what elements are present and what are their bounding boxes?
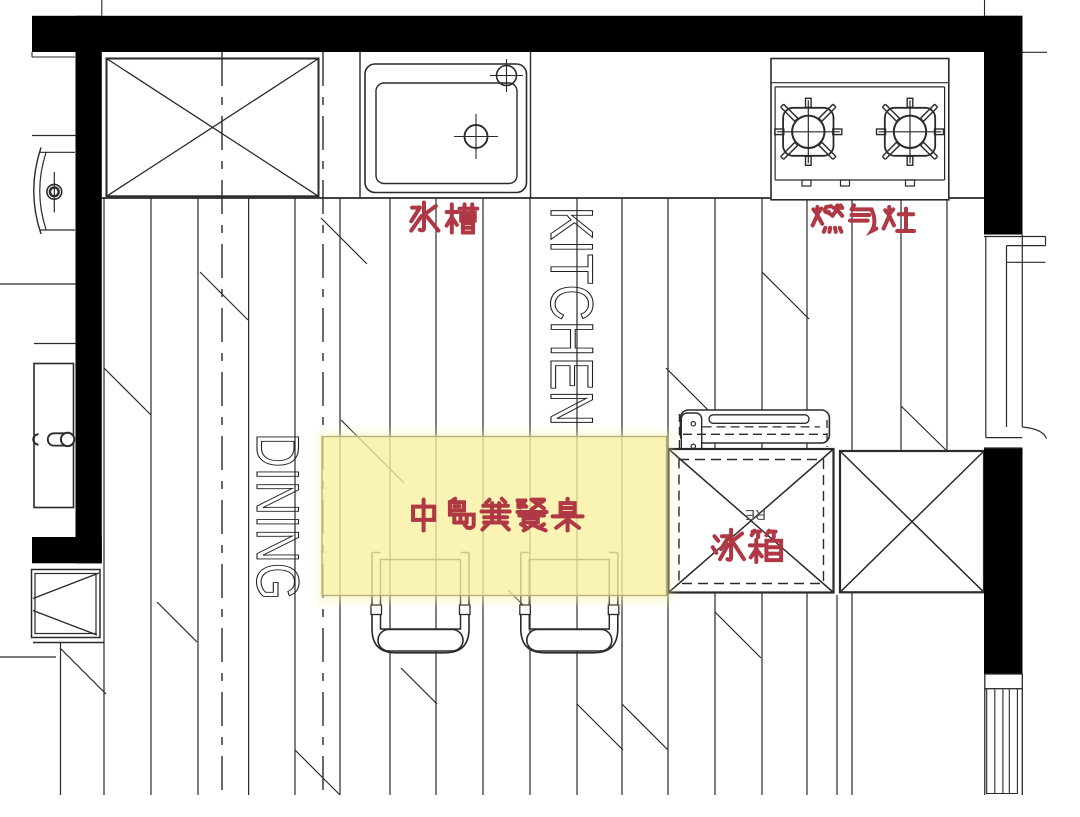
svg-text:DINING: DINING	[244, 433, 311, 600]
svg-text:KITCHEN: KITCHEN	[538, 207, 605, 427]
svg-text:RE: RE	[745, 506, 766, 523]
